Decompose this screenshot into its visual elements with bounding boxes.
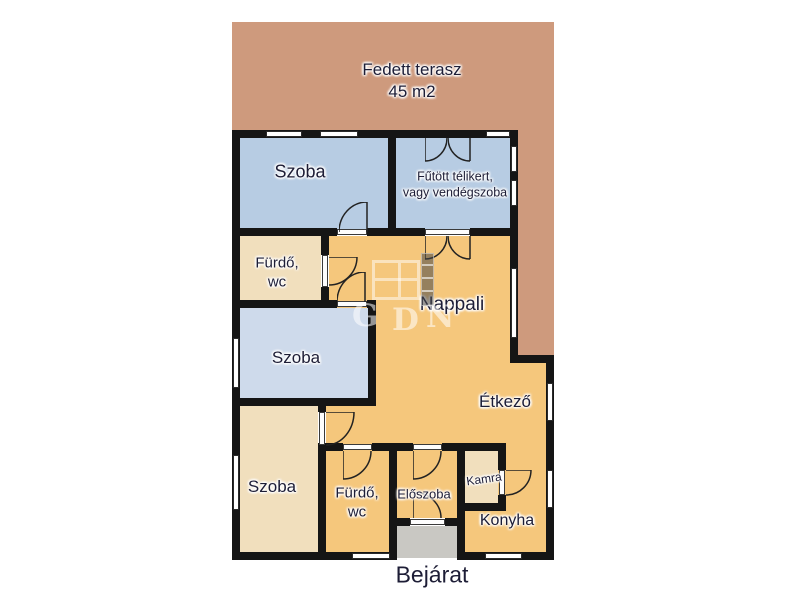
door-threshold	[425, 229, 470, 235]
wall-segment	[232, 228, 337, 236]
wall-segment	[389, 443, 397, 560]
wall-segment	[457, 443, 465, 560]
label-konyha: Konyha	[480, 512, 534, 530]
wall-segment	[321, 236, 329, 255]
wall-segment	[232, 300, 337, 308]
door-arc-szoba-bottom	[326, 412, 356, 447]
watermark-letter-g: G	[352, 298, 378, 334]
door-arc-telikert-terrace-left	[425, 138, 449, 163]
door-threshold	[322, 255, 328, 287]
label-telikert-line2: vagy vendégszoba	[403, 185, 507, 199]
watermark-letter-n: N	[426, 299, 454, 335]
window	[233, 455, 239, 510]
label-terrace: Fedett terasz	[362, 60, 461, 80]
window	[352, 553, 390, 559]
window	[511, 146, 517, 172]
door-arc-telikert-nappali-right	[448, 236, 472, 261]
wall-segment	[232, 398, 376, 406]
wall-segment	[367, 228, 425, 236]
watermark-grid-icon	[372, 260, 420, 300]
door-arc-kamra	[506, 470, 533, 497]
label-bejarat: Bejárat	[396, 562, 469, 589]
window	[547, 470, 553, 508]
label-terrace-area: 45 m2	[388, 82, 435, 102]
terrace-side-strip	[518, 136, 554, 355]
wall-segment	[388, 130, 396, 236]
door-arc-furdo-bottom	[343, 451, 373, 481]
watermark-letter-d: D	[392, 302, 419, 338]
label-furdo-bottom: Fürdő, wc	[335, 484, 378, 522]
label-szoba-top: Szoba	[274, 162, 325, 183]
label-telikert-line1: Fűtött télikert,	[417, 169, 493, 183]
wall-segment	[457, 503, 506, 511]
wall-segment	[470, 228, 518, 236]
label-eloszoba: Előszoba	[397, 487, 450, 502]
window	[485, 553, 522, 559]
window	[320, 131, 358, 137]
window	[486, 131, 510, 137]
door-arc-szoba-top	[339, 202, 369, 234]
wall-segment	[318, 398, 326, 412]
door-arc-eloszoba	[413, 451, 443, 481]
room-konyha-open	[506, 443, 546, 451]
label-telikert: Fűtött télikert, vagy vendégszoba	[403, 169, 507, 200]
window	[233, 338, 239, 388]
label-etkezo: Étkező	[479, 392, 531, 412]
label-furdo-top: Fürdő, wc	[255, 254, 298, 292]
door-threshold	[319, 412, 325, 445]
window	[547, 383, 553, 421]
floorplan-canvas: Fedett terasz 45 m2 Szoba Fűtött téliker…	[0, 0, 800, 600]
wall-segment	[318, 445, 326, 560]
entrance-doormat	[397, 526, 457, 558]
wall-segment	[498, 443, 506, 470]
wall-segment	[389, 518, 410, 526]
window	[511, 268, 517, 338]
wall-segment	[442, 443, 506, 451]
label-furdo-top-line1: Fürdő,	[255, 254, 298, 271]
label-szoba-bottom: Szoba	[248, 477, 296, 497]
label-szoba-middle: Szoba	[272, 348, 320, 368]
window	[266, 131, 302, 137]
door-arc-telikert-terrace-right	[448, 138, 472, 163]
label-furdo-bottom-line2: wc	[348, 503, 366, 520]
wall-segment	[445, 518, 465, 526]
label-furdo-bottom-line1: Fürdő,	[335, 484, 378, 501]
window	[511, 180, 517, 206]
label-furdo-top-line2: wc	[268, 273, 286, 290]
door-threshold	[413, 444, 442, 450]
